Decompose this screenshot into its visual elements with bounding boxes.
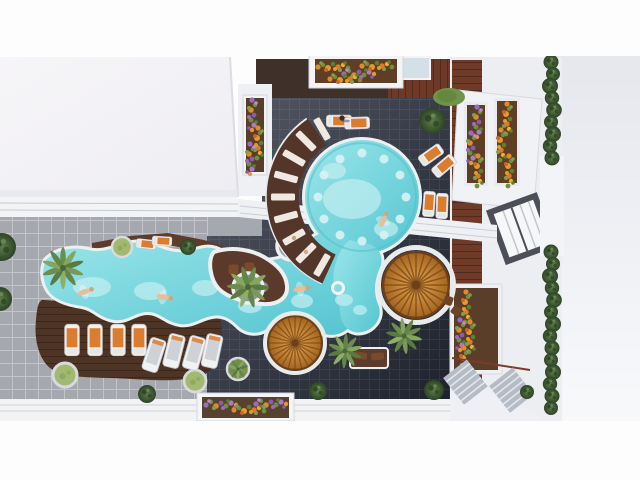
lower-right-planter [450, 284, 502, 380]
deck-seat [371, 352, 385, 360]
sunbather [292, 236, 296, 240]
circle [314, 193, 323, 202]
bottom-margin [0, 421, 640, 480]
sun-lounger-orange [132, 324, 147, 355]
aerial-resort-render: Aerial top-down 3D architectural render … [0, 0, 640, 480]
sun-lounger-orange [152, 236, 172, 246]
deck-armchair [228, 264, 239, 275]
hedge-bush [544, 245, 559, 260]
balcony-planter [464, 102, 488, 188]
circle [380, 231, 389, 240]
roof-shadow [0, 190, 238, 197]
ellipse [323, 179, 381, 219]
bottom-flower-planter [197, 393, 294, 421]
bush [419, 108, 445, 134]
sun-lounger-orange [65, 324, 80, 355]
sunbather [304, 250, 308, 254]
bush [180, 239, 196, 255]
sun-lounger-orange [344, 117, 370, 130]
bush [138, 385, 156, 403]
top-flower-planter [309, 54, 403, 88]
circle [402, 193, 411, 202]
thatched-umbrella-large [382, 251, 450, 319]
sun-lounger-orange [436, 193, 449, 219]
ellipse [353, 305, 367, 315]
top-margin [0, 0, 640, 56]
hedge-bush [544, 401, 558, 415]
sun-lounger-orange [422, 191, 435, 217]
rooftop [0, 57, 238, 197]
south-deck-square [350, 348, 388, 368]
grass-circle [184, 370, 206, 392]
circle [396, 171, 405, 180]
bush [424, 380, 444, 400]
bush [520, 385, 534, 399]
pedestrian-figure [339, 115, 344, 120]
grass-patch-shade [437, 90, 457, 102]
ellipse [335, 294, 353, 306]
circle [358, 149, 367, 158]
circle [320, 215, 329, 224]
circle [358, 237, 367, 246]
circle [320, 171, 329, 180]
circle [396, 215, 405, 224]
balcony-planter [494, 98, 520, 188]
hedge-bush [545, 151, 560, 166]
circle [336, 231, 345, 240]
circle [336, 155, 345, 164]
roof-fascia [0, 197, 238, 217]
right-margin-paving [556, 50, 640, 422]
thatched-umbrella-small [267, 315, 322, 370]
hedge-bush [544, 55, 559, 70]
grass-circle [53, 363, 77, 387]
sun-lounger-orange [88, 324, 103, 355]
grass-circle [112, 237, 132, 257]
white-ledge [540, 156, 564, 256]
arc-lounger [271, 194, 295, 201]
bush [309, 382, 327, 400]
circle [380, 155, 389, 164]
scene-svg [0, 0, 640, 480]
sun-lounger-orange [111, 324, 126, 355]
